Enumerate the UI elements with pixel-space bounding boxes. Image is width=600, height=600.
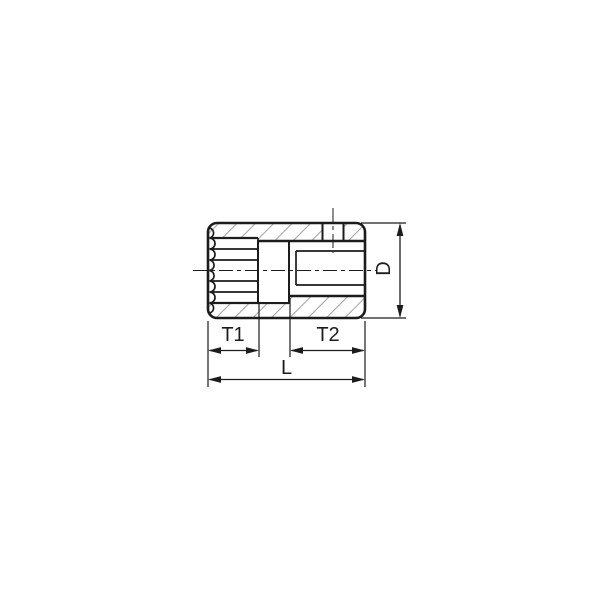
dim-label-t2: T2	[316, 324, 339, 346]
arrowhead-right	[246, 347, 259, 354]
socket-cross-section-drawing: D T1 T2 L	[0, 0, 600, 600]
arrowhead-down	[397, 305, 404, 318]
arrowhead-up	[397, 223, 404, 236]
dim-label-t1: T1	[221, 324, 244, 346]
arrowhead-right	[352, 347, 365, 354]
arrowhead-left	[208, 376, 221, 383]
middle-wall	[258, 241, 289, 303]
dim-label-length: L	[281, 357, 292, 379]
drawing-canvas: D T1 T2 L	[0, 0, 600, 600]
arrowhead-right	[352, 376, 365, 383]
dim-label-diameter: D	[373, 261, 395, 275]
arrowhead-left	[208, 347, 221, 354]
arrowhead-left	[290, 347, 303, 354]
